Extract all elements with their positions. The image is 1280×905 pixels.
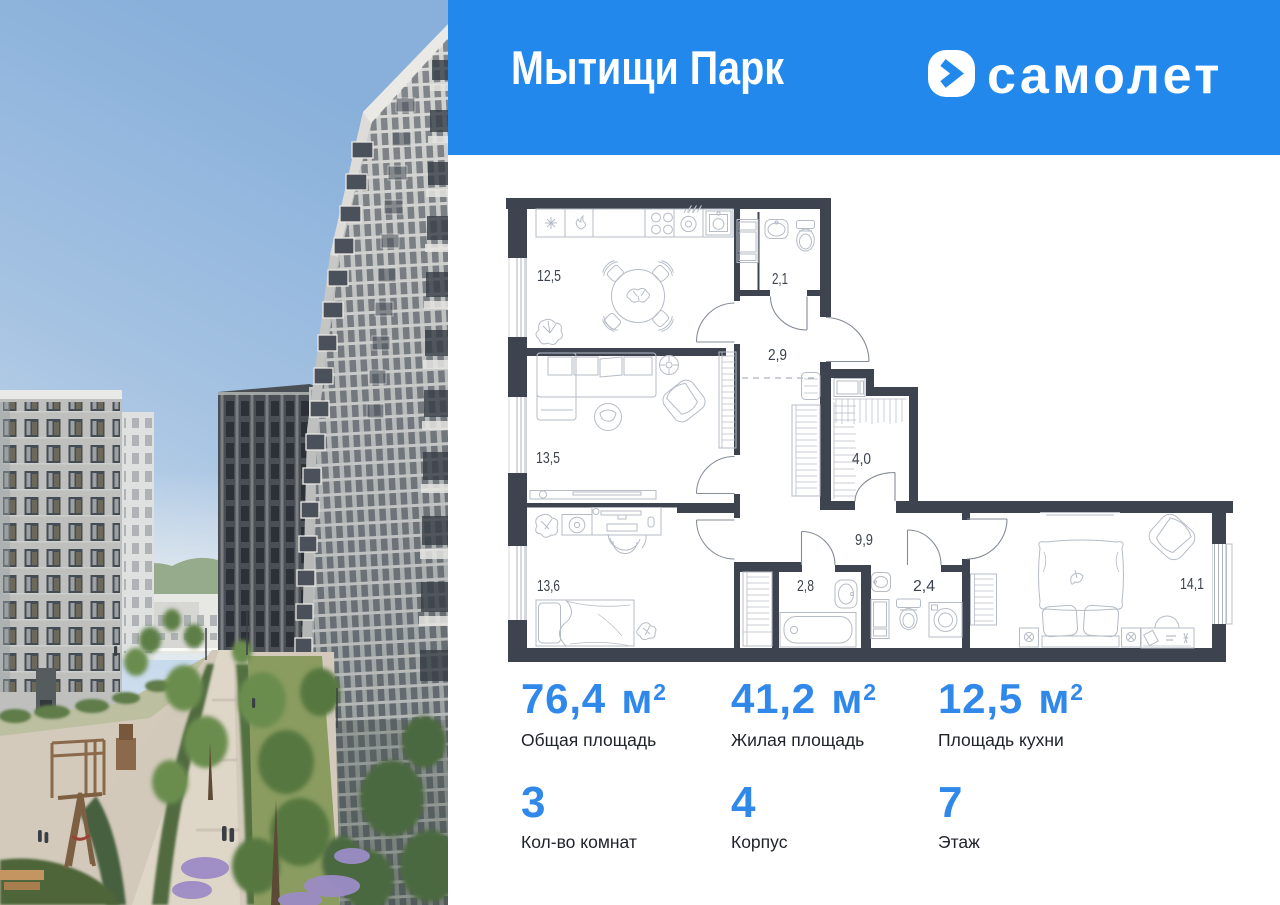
svg-text:2,1: 2,1 <box>772 271 788 288</box>
svg-text:2,8: 2,8 <box>797 578 814 595</box>
svg-text:13,6: 13,6 <box>537 578 560 595</box>
svg-text:12,5: 12,5 <box>537 268 561 285</box>
svg-text:самолет: самолет <box>987 50 1218 105</box>
svg-text:4,0: 4,0 <box>852 451 871 468</box>
svg-text:9,9: 9,9 <box>855 532 873 549</box>
svg-text:2,4: 2,4 <box>913 578 935 595</box>
svg-text:14,1: 14,1 <box>1180 576 1204 593</box>
svg-text:2,9: 2,9 <box>768 347 787 364</box>
svg-text:13,5: 13,5 <box>536 450 560 467</box>
